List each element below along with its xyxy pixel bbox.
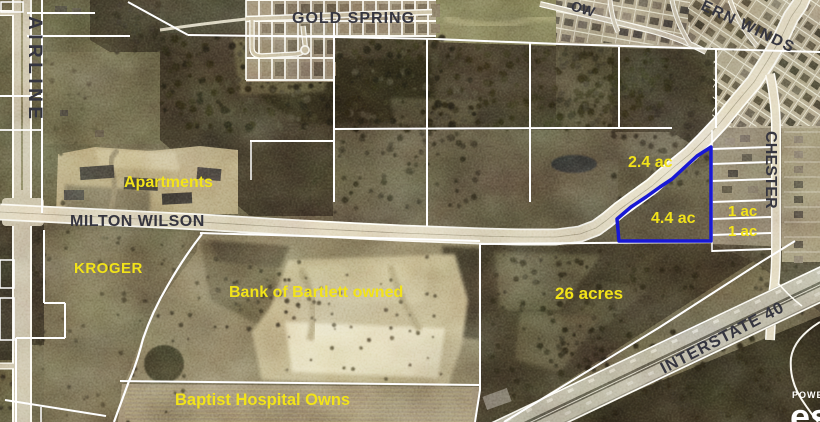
svg-text:CHESTER: CHESTER (762, 131, 779, 209)
svg-text:2.4 ac: 2.4 ac (628, 154, 673, 171)
svg-text:Apartments: Apartments (124, 174, 213, 191)
svg-text:26 acres: 26 acres (555, 284, 623, 303)
svg-text:1 ac: 1 ac (728, 223, 757, 240)
svg-text:GOLD SPRING: GOLD SPRING (292, 10, 415, 27)
svg-text:Bank of Bartlett owned: Bank of Bartlett owned (229, 284, 403, 301)
svg-text:AIRLINE: AIRLINE (24, 16, 45, 124)
svg-text:4.4 ac: 4.4 ac (651, 210, 696, 227)
svg-text:KROGER: KROGER (74, 260, 143, 277)
svg-text:1 ac: 1 ac (728, 203, 757, 220)
svg-text:MILTON WILSON: MILTON WILSON (70, 213, 205, 230)
svg-text:Baptist Hospital Owns: Baptist Hospital Owns (175, 391, 350, 409)
svg-text:esri: esri (790, 396, 820, 422)
